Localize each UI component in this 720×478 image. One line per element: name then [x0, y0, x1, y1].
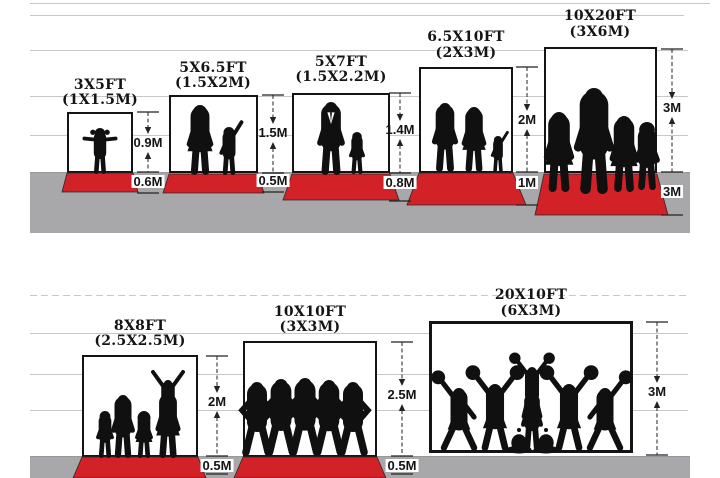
panel-subtitle: (6X3M): [501, 304, 562, 318]
panel-title: 6.5X10FT: [427, 30, 504, 44]
floor-top-row: [30, 172, 690, 233]
panel-title: 10X10FT: [274, 305, 346, 319]
height-label: 3M: [648, 385, 666, 398]
panel-subtitle: (1.5X2M): [175, 76, 251, 90]
height-label: 1.4M: [386, 123, 415, 136]
height-label: 2M: [518, 113, 536, 126]
backdrop-frame-10x20: [544, 47, 657, 173]
panel-subtitle: (3X3M): [280, 320, 341, 334]
floor-depth-label: 0.6M: [132, 175, 165, 188]
floor-depth-label: 0.5M: [201, 459, 234, 472]
wall-line: [30, 295, 688, 296]
panel-title: 20X10FT: [495, 288, 567, 302]
backdrop-frame-6.5x10: [419, 67, 513, 173]
backdrop-size-chart: 3X5FT (1X1.5M) 5X6.5FT (1.5X2M) 5X7FT (1…: [0, 0, 720, 478]
height-label: 2M: [208, 395, 226, 408]
floor-depth-label: 0.5M: [257, 174, 290, 187]
floor-depth-label: 0.8M: [384, 176, 417, 189]
panel-subtitle: (2X3M): [436, 46, 497, 60]
backdrop-frame-10x10: [243, 341, 377, 457]
panel-subtitle: (1.5X2.2M): [295, 70, 386, 84]
panel-title: 8X8FT: [114, 319, 166, 333]
height-label: 3M: [663, 101, 681, 114]
height-label: 1.5M: [259, 126, 288, 139]
backdrop-frame-3x5: [67, 112, 133, 173]
backdrop-frame-5x7: [292, 93, 390, 173]
floor-depth-label: 1M: [516, 176, 538, 189]
panel-subtitle: (3X6M): [570, 25, 631, 39]
panel-title: 3X5FT: [74, 78, 126, 92]
height-label: 2.5M: [388, 388, 417, 401]
panel-title: 5X7FT: [315, 55, 367, 69]
panel-title: 5X6.5FT: [179, 61, 246, 75]
wall-line: [30, 3, 710, 4]
floor-depth-label: 3M: [661, 185, 683, 198]
backdrop-frame-8x8: [82, 355, 198, 457]
height-label: 0.9M: [134, 136, 163, 149]
floor-depth-label: 0.5M: [386, 459, 419, 472]
floor-bottom-row: [30, 456, 690, 478]
backdrop-frame-5x6.5: [169, 95, 258, 173]
panel-title: 10X20FT: [564, 9, 636, 23]
backdrop-frame-20x10: [429, 321, 633, 453]
panel-subtitle: (2.5X2.5M): [94, 334, 185, 348]
panel-subtitle: (1X1.5M): [62, 93, 138, 107]
